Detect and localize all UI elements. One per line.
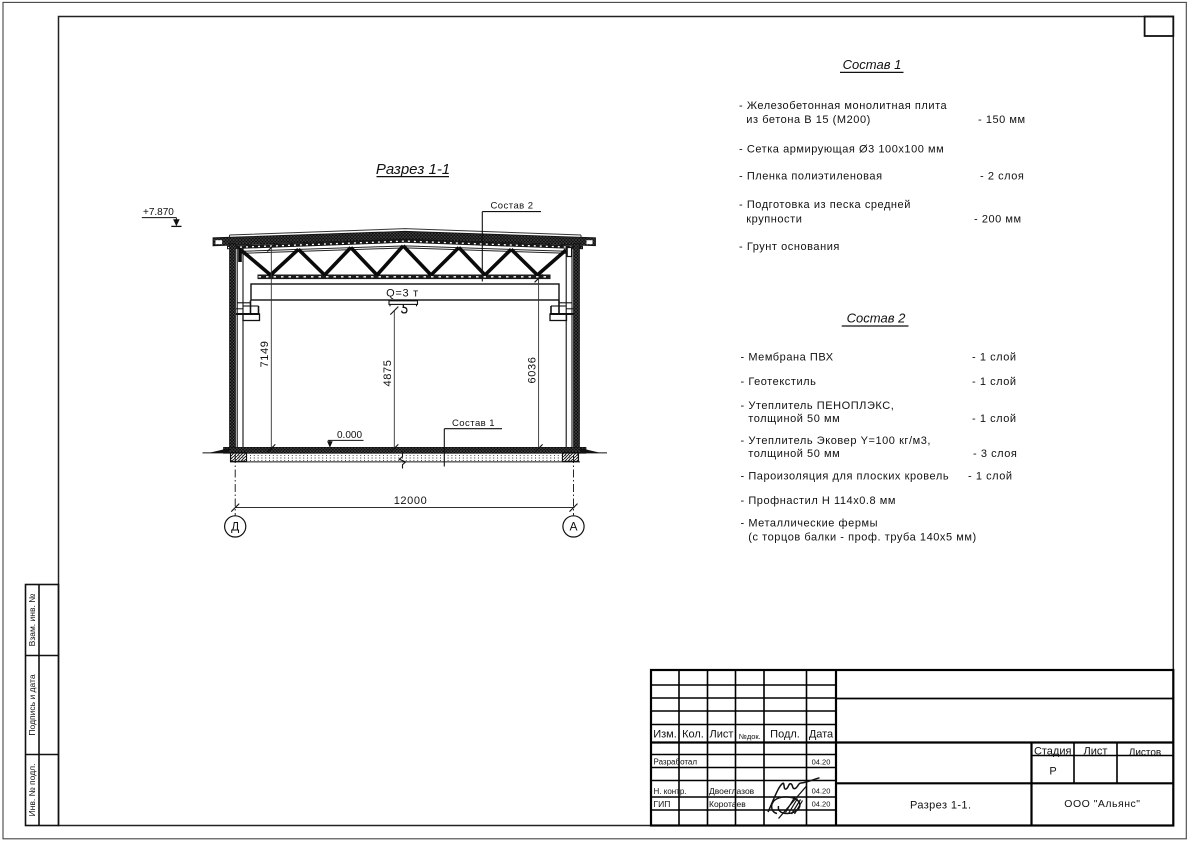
svg-text:Состав 2: Состав 2 [491,200,534,211]
svg-text:- Пароизоляция для плоских кро: - Пароизоляция для плоских кровель [741,471,950,483]
svg-text:Подл.: Подл. [770,729,800,741]
svg-text:- 3 слоя: - 3 слоя [973,448,1017,460]
svg-text:Лист: Лист [1084,746,1108,758]
svg-text:- 2 слоя: - 2 слоя [980,171,1024,183]
svg-text:- 200 мм: - 200 мм [974,214,1022,226]
svg-text:Лист: Лист [710,729,734,741]
svg-text:- 1 слой: - 1 слой [972,351,1017,363]
svg-text:+7.870: +7.870 [143,207,174,218]
svg-text:толщиной 50 мм: толщиной 50 мм [748,413,840,425]
svg-text:04.20: 04.20 [812,800,831,809]
svg-text:Р: Р [1049,766,1056,778]
svg-text:Разработал: Разработал [654,758,698,767]
svg-text:А: А [569,520,577,534]
svg-text:- Мембрана ПВХ: - Мембрана ПВХ [741,351,834,363]
svg-text:- 1 слой: - 1 слой [968,471,1013,483]
svg-text:из бетона В 15 (М200): из бетона В 15 (М200) [746,114,871,126]
svg-text:- Утеплитель ПЕНОПЛЭКС,: - Утеплитель ПЕНОПЛЭКС, [741,400,895,412]
svg-text:Состав 2: Состав 2 [847,311,906,326]
svg-text:- Профнастил Н 114х0.8 мм: - Профнастил Н 114х0.8 мм [741,495,897,507]
svg-text:(с торцов балки - проф. труба: (с торцов балки - проф. труба 140х5 мм) [748,532,976,544]
svg-text:- 1 слой: - 1 слой [972,413,1017,425]
svg-text:04.20: 04.20 [812,787,831,796]
svg-text:04.20: 04.20 [812,757,831,766]
svg-text:Состав 1: Состав 1 [452,418,495,429]
svg-text:Стадия: Стадия [1034,746,1072,758]
svg-text:- 1 слой: - 1 слой [972,376,1017,388]
svg-text:- 150 мм: - 150 мм [978,114,1026,126]
svg-text:- Утеплитель Эковер Y=100 кг/м: - Утеплитель Эковер Y=100 кг/м3, [741,435,932,447]
svg-text:Инв. № подл.: Инв. № подл. [27,764,37,817]
svg-text:12000: 12000 [394,495,428,507]
svg-text:Состав 1: Состав 1 [843,57,902,72]
svg-text:0.000: 0.000 [337,430,362,441]
svg-text:- Подготовка из песка средней: - Подготовка из песка средней [739,199,911,211]
svg-text:- Железобетонная монолитная п: - Железобетонная монолитная плита [739,100,948,112]
svg-text:толщиной 50 мм: толщиной 50 мм [748,448,840,460]
svg-text:крупности: крупности [746,214,802,226]
svg-text:Дата: Дата [809,729,834,741]
svg-text:ООО "Альянс": ООО "Альянс" [1064,798,1140,810]
svg-text:Коротаев: Коротаев [709,799,746,809]
svg-text:- Геотекстиль: - Геотекстиль [741,376,817,388]
svg-text:ГИП: ГИП [654,799,671,809]
svg-text:- Металлические фермы: - Металлические фермы [741,517,879,529]
svg-text:Двоеглазов: Двоеглазов [709,786,755,796]
svg-text:7149: 7149 [259,341,271,368]
svg-text:- Грунт основания: - Грунт основания [739,241,840,253]
svg-text:Д: Д [231,520,239,534]
svg-text:Разрез 1-1.: Разрез 1-1. [910,800,971,812]
svg-text:Взам. инв. №: Взам. инв. № [27,594,37,647]
svg-text:Изм.: Изм. [653,729,677,741]
svg-text:№док.: №док. [739,732,761,741]
svg-text:Листов: Листов [1129,748,1162,759]
svg-text:Кол.: Кол. [682,729,704,741]
svg-text:- Пленка полиэтиленовая: - Пленка полиэтиленовая [739,171,883,183]
svg-text:Н. контр.: Н. контр. [654,787,687,796]
svg-text:- Сетка армирующая Ø3 100х100: - Сетка армирующая Ø3 100х100 мм [739,143,944,155]
svg-text:Q=3 т: Q=3 т [386,288,419,300]
svg-text:4875: 4875 [382,360,394,387]
svg-text:Подпись и дата: Подпись и дата [27,674,37,735]
svg-text:Разрез 1-1: Разрез 1-1 [376,161,450,178]
svg-text:6036: 6036 [527,357,539,384]
